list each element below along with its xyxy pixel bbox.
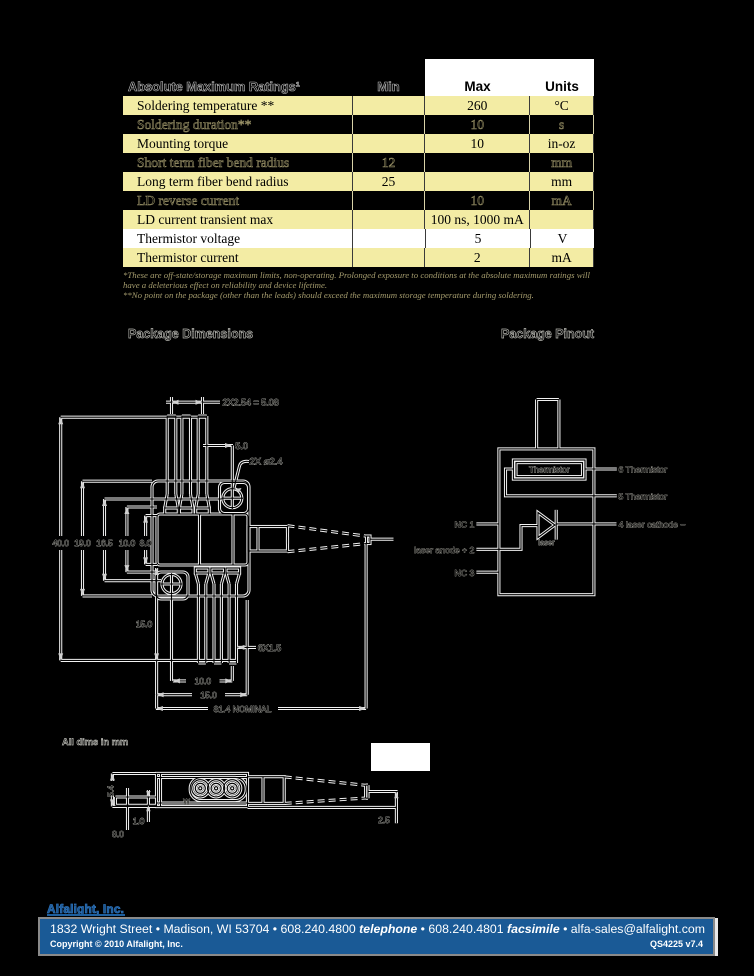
svg-text:10.0: 10.0	[119, 538, 136, 548]
svg-text:laser anode + 2: laser anode + 2	[414, 545, 474, 555]
svg-text:10.0: 10.0	[195, 676, 212, 686]
svg-text:2.5: 2.5	[378, 815, 390, 825]
svg-text:6 Thermistor: 6 Thermistor	[619, 465, 668, 475]
svg-text:2X ⌀2.4: 2X ⌀2.4	[250, 457, 283, 468]
svg-text:NC 1: NC 1	[455, 520, 475, 530]
svg-text:81.4 NOMINAL: 81.4 NOMINAL	[214, 704, 272, 714]
svg-text:40.0: 40.0	[52, 538, 69, 548]
svg-text:NC 3: NC 3	[455, 568, 475, 578]
svg-text:laser: laser	[538, 538, 555, 547]
svg-text:W: W	[183, 799, 190, 806]
svg-text:8.0: 8.0	[140, 538, 152, 548]
svg-text:1.0: 1.0	[133, 816, 145, 826]
svg-text:16.5: 16.5	[96, 538, 113, 548]
svg-text:Thermistor: Thermistor	[529, 465, 570, 475]
svg-text:5.0: 5.0	[235, 441, 248, 451]
svg-text:15.0: 15.0	[200, 690, 217, 700]
svg-text:2X2.54 = 5.08: 2X2.54 = 5.08	[223, 398, 279, 408]
svg-text:5 Thermistor: 5 Thermistor	[619, 492, 668, 502]
svg-text:5.4: 5.4	[107, 785, 116, 797]
svg-text:19.0: 19.0	[74, 538, 91, 548]
svg-text:6X1.5: 6X1.5	[258, 643, 282, 653]
svg-text:15.0: 15.0	[136, 619, 153, 629]
svg-text:8.0: 8.0	[112, 829, 124, 839]
svg-text:4 laser cathode −: 4 laser cathode −	[619, 520, 686, 530]
